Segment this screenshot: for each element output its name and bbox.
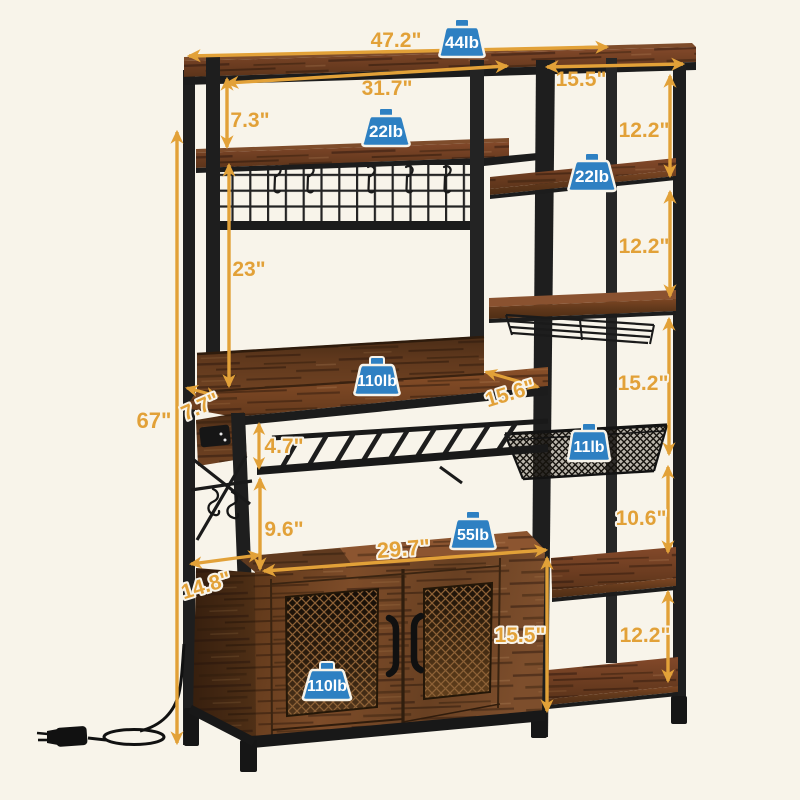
svg-text:29.7": 29.7" (376, 534, 431, 563)
svg-text:4.7": 4.7" (264, 435, 303, 458)
svg-text:11lb: 11lb (573, 439, 604, 456)
svg-text:22lb: 22lb (369, 122, 403, 141)
svg-text:55lb: 55lb (457, 527, 489, 544)
svg-text:110lb: 110lb (357, 373, 397, 390)
svg-text:47.2": 47.2" (371, 29, 422, 52)
svg-text:110lb: 110lb (307, 678, 347, 695)
svg-text:12.2": 12.2" (619, 235, 670, 258)
svg-text:44lb: 44lb (445, 33, 479, 52)
svg-text:12.2": 12.2" (620, 624, 671, 647)
svg-text:67": 67" (137, 408, 172, 433)
svg-text:12.2": 12.2" (619, 119, 670, 142)
svg-text:7.3": 7.3" (230, 109, 269, 132)
svg-text:9.6": 9.6" (264, 518, 303, 541)
svg-text:22lb: 22lb (575, 167, 609, 186)
svg-text:15.5": 15.5" (556, 68, 607, 91)
svg-text:15.2": 15.2" (618, 372, 669, 395)
svg-text:23": 23" (232, 258, 265, 281)
svg-text:15.5": 15.5" (495, 624, 546, 647)
svg-text:10.6": 10.6" (616, 507, 667, 530)
svg-text:31.7": 31.7" (362, 77, 413, 100)
